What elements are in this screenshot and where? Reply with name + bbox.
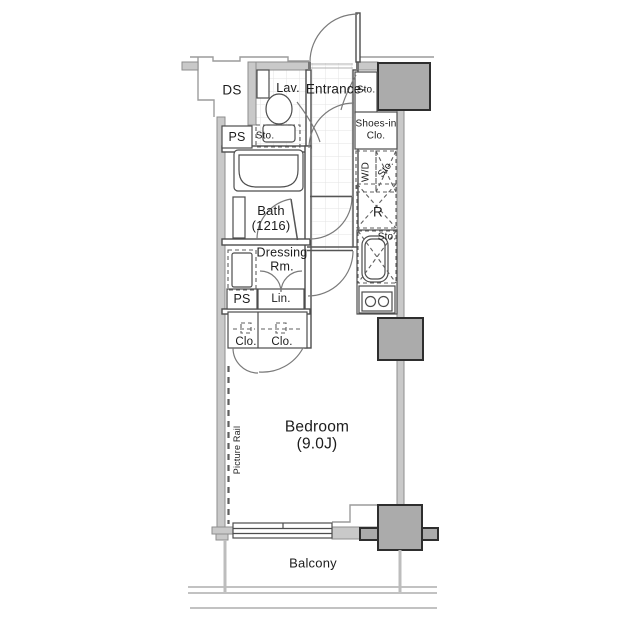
door-jamb-left (308, 62, 311, 70)
bedroom-label: Bedroom (9.0J) (285, 420, 349, 453)
shoes-in-closet-line1: Shoes-in (355, 119, 396, 131)
bedroom-size: (9.0J) (285, 436, 349, 453)
balcony-label: Balcony (289, 556, 337, 571)
refrigerator-label: R (373, 205, 383, 220)
lavatory-storage-label: Sto. (256, 131, 275, 142)
kitchen-storage-label: Sto. (378, 232, 397, 243)
bath-name: Bath (252, 203, 291, 218)
dressing-room-label: Dressing Rm. (257, 247, 308, 274)
shoes-in-closet-line2: Clo. (355, 130, 396, 142)
shoes-in-closet-label: Shoes-in Clo. (355, 119, 396, 142)
ds-label: DS (222, 83, 241, 98)
bath-size: (1216) (252, 218, 291, 233)
bath-label: Bath (1216) (252, 203, 291, 233)
closet-left-label: Clo. (235, 336, 256, 348)
bedroom-name: Bedroom (285, 420, 349, 437)
door-jamb-right (356, 62, 359, 70)
dressing-room-line2: Rm. (257, 260, 308, 274)
ps-upper-label: PS (228, 130, 245, 144)
lavatory-label: Lav. (276, 81, 300, 95)
floorplan: DS PS Lav. Sto. Entrance- Sto. Shoes-in … (0, 0, 640, 639)
linen-label: Lin. (271, 293, 290, 305)
balcony-lines (188, 540, 437, 608)
entrance-storage-label: Sto. (357, 85, 376, 96)
dressing-room-line1: Dressing (257, 247, 308, 261)
ps-lower-label: PS (233, 292, 250, 306)
closet-right-label: Clo. (271, 336, 292, 348)
picture-rail-label: Picture Rail (232, 426, 242, 474)
washer-dryer-label: W/D (361, 162, 372, 182)
